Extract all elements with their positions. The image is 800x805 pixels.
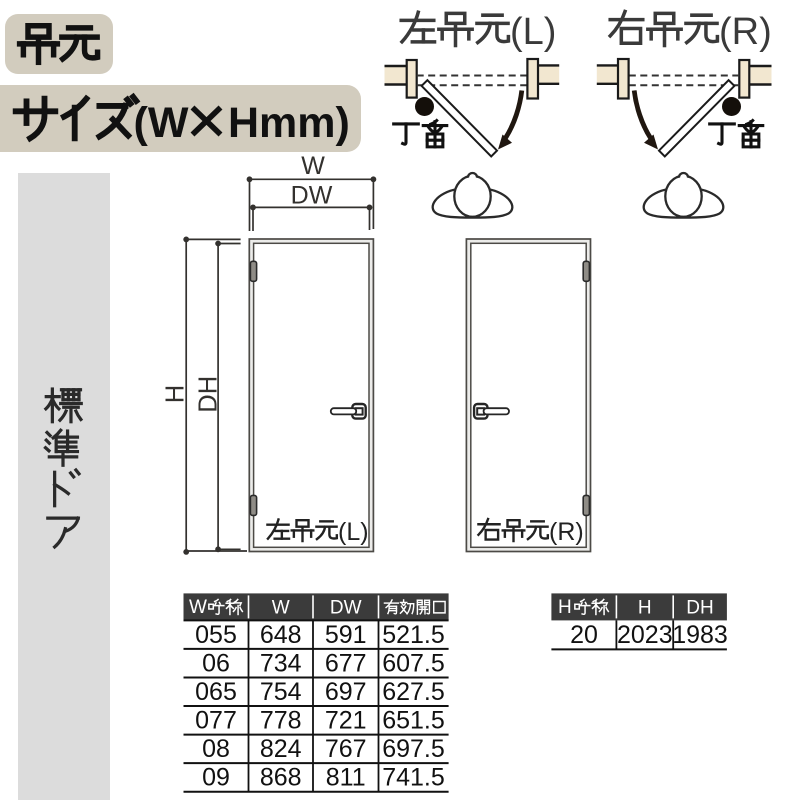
svg-text:2023: 2023	[617, 621, 673, 649]
svg-text:(L): (L)	[338, 518, 369, 546]
svg-text:(R): (R)	[719, 11, 772, 53]
svg-text:DW: DW	[330, 598, 362, 619]
svg-text:824: 824	[260, 735, 302, 763]
svg-text:697.5: 697.5	[382, 735, 445, 763]
svg-text:H: H	[638, 598, 652, 619]
svg-text:754: 754	[260, 678, 302, 706]
svg-text:607.5: 607.5	[382, 650, 445, 678]
svg-text:055: 055	[195, 621, 237, 649]
svg-text:677: 677	[325, 650, 367, 678]
svg-text:741.5: 741.5	[382, 764, 445, 792]
svg-text:648: 648	[260, 621, 302, 649]
svg-text:868: 868	[260, 764, 302, 792]
svg-text:767: 767	[325, 735, 367, 763]
svg-text:DH: DH	[686, 598, 713, 619]
svg-text:(R): (R)	[549, 518, 584, 546]
svg-text:06: 06	[202, 650, 230, 678]
svg-text:H: H	[162, 385, 190, 403]
svg-text:627.5: 627.5	[382, 678, 445, 706]
svg-text:651.5: 651.5	[382, 707, 445, 735]
svg-text:1983: 1983	[672, 621, 728, 649]
svg-text:DH: DH	[195, 376, 223, 413]
svg-text:734: 734	[260, 650, 302, 678]
svg-text:721: 721	[325, 707, 367, 735]
svg-text:09: 09	[202, 764, 230, 792]
svg-text:W: W	[301, 152, 325, 180]
svg-text:(L): (L)	[510, 11, 556, 53]
svg-text:811: 811	[326, 764, 366, 792]
svg-text:W: W	[189, 597, 207, 618]
svg-text:077: 077	[195, 707, 237, 735]
svg-text:W: W	[272, 598, 290, 619]
svg-text:697: 697	[325, 678, 367, 706]
svg-text:521.5: 521.5	[382, 621, 445, 649]
svg-text:065: 065	[195, 678, 237, 706]
svg-text:778: 778	[260, 707, 302, 735]
svg-text:Hmm): Hmm)	[228, 99, 350, 147]
svg-text:(W: (W	[134, 99, 189, 147]
svg-text:DW: DW	[291, 182, 333, 210]
svg-text:591: 591	[325, 621, 367, 649]
svg-text:20: 20	[570, 621, 598, 649]
svg-text:08: 08	[202, 735, 230, 763]
svg-text:H: H	[558, 597, 572, 618]
